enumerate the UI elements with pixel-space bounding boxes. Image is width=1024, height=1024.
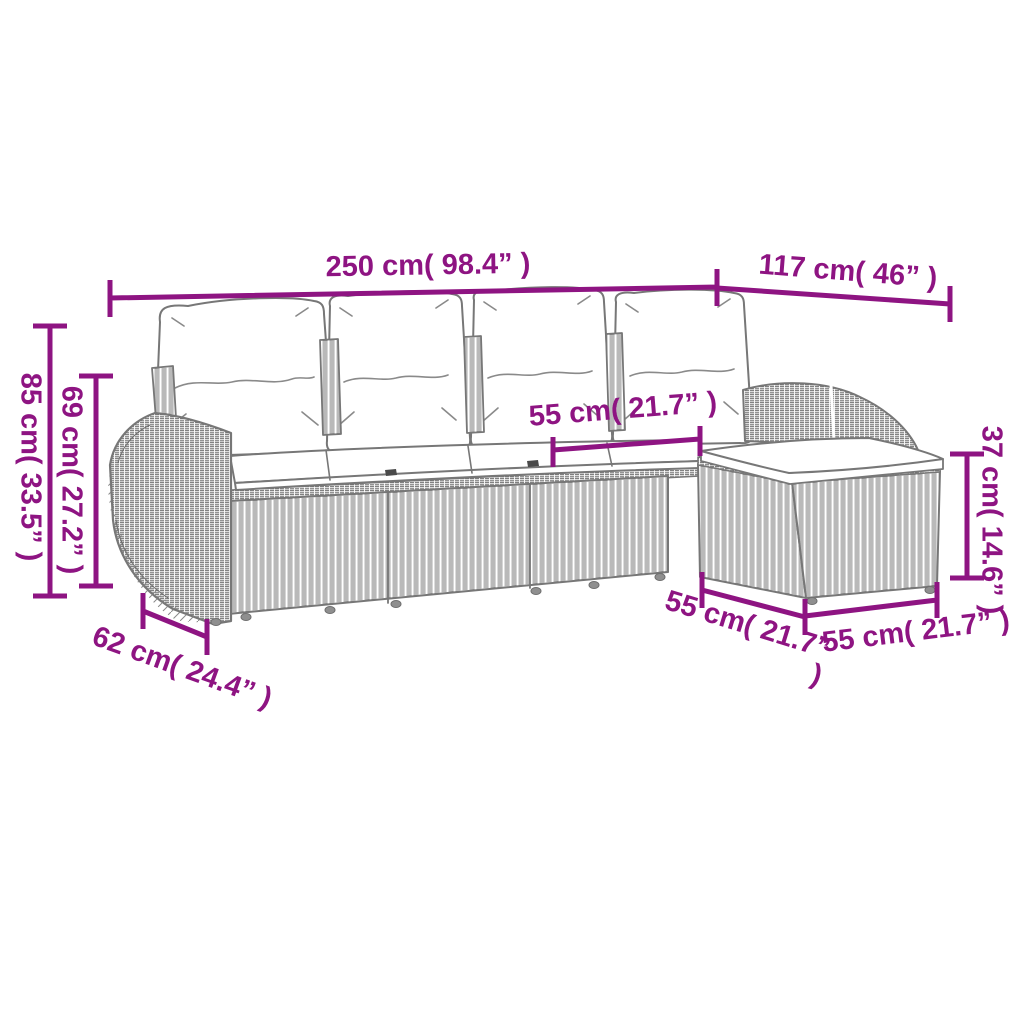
- frame-post: [464, 336, 484, 433]
- base-front-panel: [228, 476, 668, 614]
- dim-label-total-width: 250 cm( 98.4” ): [325, 250, 530, 283]
- frame-post: [152, 366, 176, 420]
- left-armrest: [108, 413, 231, 624]
- dim-label-backrest-height: 69 cm( 27.2” ): [57, 386, 86, 575]
- sofa-illustration: [0, 0, 1024, 1024]
- footstool-right-face: [792, 471, 940, 598]
- back-pillow: [327, 291, 470, 452]
- dim-label-footstool-height: 37 cm( 14.6” ): [977, 426, 1006, 615]
- frame-post: [320, 339, 341, 435]
- sofa-base: [228, 466, 700, 614]
- footstool: [698, 438, 943, 598]
- product-dimension-diagram: 250 cm( 98.4” ) 117 cm( 46” ) 85 cm( 33.…: [0, 0, 1024, 1024]
- dim-label-overall-height: 85 cm( 33.5” ): [16, 373, 45, 562]
